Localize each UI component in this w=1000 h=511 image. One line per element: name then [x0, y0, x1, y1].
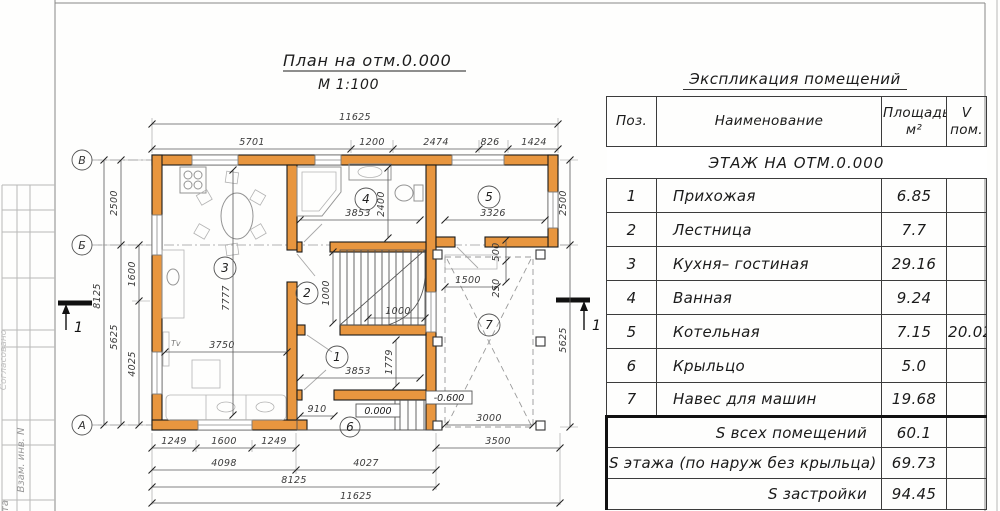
row-area: 29.16: [882, 247, 947, 281]
dim-cp3: 250: [491, 278, 502, 297]
margin-text-vzam-inv: Взам. инв. N: [16, 427, 27, 492]
row-name: Прихожая: [657, 179, 882, 213]
summary-row: S застройки 94.45: [607, 479, 987, 510]
row-pos: 7: [607, 383, 657, 417]
table-header-row: Поз. Наименование Площадь м² V пом.: [607, 97, 987, 147]
table-row: 4 Ванная 9.24: [607, 281, 987, 315]
dim-door: 910: [307, 404, 326, 415]
room-7-label: 7: [485, 318, 493, 332]
table-row: 1 Прихожая 6.85: [607, 179, 987, 213]
dining-set: [194, 171, 266, 256]
dim-t2: 1200: [359, 137, 384, 148]
row-name: Кухня– гостиная: [657, 247, 882, 281]
section-1-right: 1: [592, 318, 601, 334]
room-2-label: 2: [303, 286, 311, 300]
dim-b2: 1600: [211, 436, 236, 447]
dim-b1: 1249: [161, 436, 186, 447]
room-4-label: 4: [362, 192, 370, 206]
dim-l2: 5625: [109, 324, 120, 349]
summary-area: 60.1: [882, 417, 947, 448]
staircase: [340, 250, 425, 325]
table-row: 2 Лестница 7.7: [607, 213, 987, 247]
dimensions: 11625 5701 1200 2474 826 1424 1249 1600 …: [92, 112, 574, 507]
axis-label-b: Б: [78, 239, 86, 252]
row-pos: 3: [607, 247, 657, 281]
dim-l1: 2500: [109, 190, 120, 215]
plan-title: План на отм.0.000: [283, 51, 452, 70]
dim-cp1: 1500: [455, 275, 480, 286]
row-vol: [947, 383, 987, 417]
dining-table-icon: [221, 193, 253, 239]
room-3-label: 3: [221, 261, 229, 275]
summary-row: S этажа (по наруж без крыльца) 69.73: [607, 448, 987, 479]
dim-b5: 4098: [211, 458, 236, 469]
summary-vol: [947, 479, 987, 510]
summary-area: 69.73: [882, 448, 947, 479]
row-area: 9.24: [882, 281, 947, 315]
dim-room5-w: 3326: [480, 208, 505, 219]
room-schedule-table: Поз. Наименование Площадь м² V пом. ЭТАЖ…: [605, 96, 987, 510]
dim-b8: 11625: [340, 491, 372, 502]
dim-room3-h: 7777: [221, 285, 232, 310]
floor-section-row: ЭТАЖ НА ОТМ.0.000: [607, 147, 987, 179]
kitchen-counter: [162, 250, 184, 318]
row-name: Ванная: [657, 281, 882, 315]
sink-icon: [167, 269, 179, 285]
dim-l4: 4025: [127, 351, 138, 376]
kitchen-fixtures: [162, 167, 206, 318]
row-vol: [947, 213, 987, 247]
dim-t5: 1424: [521, 137, 546, 148]
axis-label-a: А: [77, 419, 86, 432]
row-area: 7.7: [882, 213, 947, 247]
row-vol: [947, 281, 987, 315]
header-pos: Поз.: [607, 97, 657, 147]
summary-label: S застройки: [607, 479, 882, 510]
table-row: 7 Навес для машин 19.68: [607, 383, 987, 417]
table-row: 3 Кухня– гостиная 29.16: [607, 247, 987, 281]
row-area: 7.15: [882, 315, 947, 349]
summary-vol: [947, 448, 987, 479]
dim-t3: 2474: [423, 137, 448, 148]
header-vol-line1: V: [948, 105, 985, 121]
sheet-margin-grid: Согласовано Взам. инв. N та: [0, 185, 55, 511]
axis-bubbles: В Б А: [72, 150, 92, 435]
drawing-sheet: Согласовано Взам. инв. N та План на отм.…: [0, 0, 1000, 511]
row-vol: 20.02: [947, 315, 987, 349]
dim-room4-w: 3853: [345, 208, 370, 219]
sofa-icon: [166, 395, 286, 420]
dim-l-total: 8125: [92, 283, 103, 308]
dim-cp4: 3000: [476, 413, 501, 424]
summary-row: S всех помещений 60.1: [607, 417, 987, 448]
tv-label: Тv: [171, 339, 181, 348]
dim-rt2: 5625: [558, 327, 569, 352]
margin-text-soglasovano: Согласовано: [0, 329, 9, 390]
header-vol: V пом.: [947, 97, 987, 147]
dim-b6: 4027: [353, 458, 378, 469]
row-name: Навес для машин: [657, 383, 882, 417]
stove-icon: [180, 167, 206, 193]
row-vol: [947, 247, 987, 281]
row-pos: 6: [607, 349, 657, 383]
dim-room4-h: 2400: [376, 191, 387, 216]
dim-b4: 3500: [485, 436, 510, 447]
header-vol-line2: пом.: [948, 122, 985, 138]
row-vol: [947, 179, 987, 213]
row-pos: 1: [607, 179, 657, 213]
axis-label-v: В: [78, 154, 86, 167]
header-area-line2: м²: [883, 122, 945, 138]
margin-text-data: та: [0, 500, 11, 511]
dim-room1-h: 1779: [384, 349, 395, 374]
toilet-icon: [395, 185, 413, 201]
summary-vol: [947, 417, 987, 448]
table-row: 5 Котельная 7.15 20.02: [607, 315, 987, 349]
dim-b3: 1249: [261, 436, 286, 447]
summary-label: S всех помещений: [607, 417, 882, 448]
dim-rt1: 2500: [558, 190, 569, 215]
coffee-table-icon: [192, 360, 220, 388]
row-area: 6.85: [882, 179, 947, 213]
room-1-label: 1: [333, 350, 341, 364]
summary-area: 94.45: [882, 479, 947, 510]
level-zero: 0.000: [364, 406, 391, 417]
dim-t4: 826: [480, 137, 499, 148]
row-pos: 4: [607, 281, 657, 315]
row-name: Лестница: [657, 213, 882, 247]
header-area-line1: Площадь: [883, 105, 945, 121]
dim-room1-w: 3853: [345, 366, 370, 377]
row-area: 19.68: [882, 383, 947, 417]
dim-room3-w: 3750: [209, 340, 234, 351]
summary-label: S этажа (по наруж без крыльца): [607, 448, 882, 479]
dim-b7: 8125: [281, 475, 306, 486]
header-name: Наименование: [657, 97, 882, 147]
table-row: 6 Крыльцо 5.0: [607, 349, 987, 383]
row-name: Котельная: [657, 315, 882, 349]
dim-cp2: 500: [491, 242, 502, 261]
dim-top-overall: 11625: [339, 112, 371, 123]
dim-stair-v: 1000: [321, 280, 332, 305]
room-6-label: 6: [346, 420, 354, 434]
plan-title-block: План на отм.0.000 М 1:100: [283, 51, 466, 93]
row-pos: 2: [607, 213, 657, 247]
row-area: 5.0: [882, 349, 947, 383]
row-pos: 5: [607, 315, 657, 349]
room-5-label: 5: [485, 190, 493, 204]
level-minus: -0.600: [434, 393, 465, 404]
header-area: Площадь м²: [882, 97, 947, 147]
dim-l3: 1600: [127, 261, 138, 286]
dim-stair-h: 1000: [385, 306, 410, 317]
dim-t1: 5701: [239, 137, 264, 148]
section-1-left: 1: [74, 320, 83, 336]
plan-scale: М 1:100: [318, 77, 379, 93]
floor-section-label: ЭТАЖ НА ОТМ.0.000: [607, 147, 987, 179]
row-name: Крыльцо: [657, 349, 882, 383]
schedule-title: Экспликация помещений: [605, 70, 985, 88]
row-vol: [947, 349, 987, 383]
